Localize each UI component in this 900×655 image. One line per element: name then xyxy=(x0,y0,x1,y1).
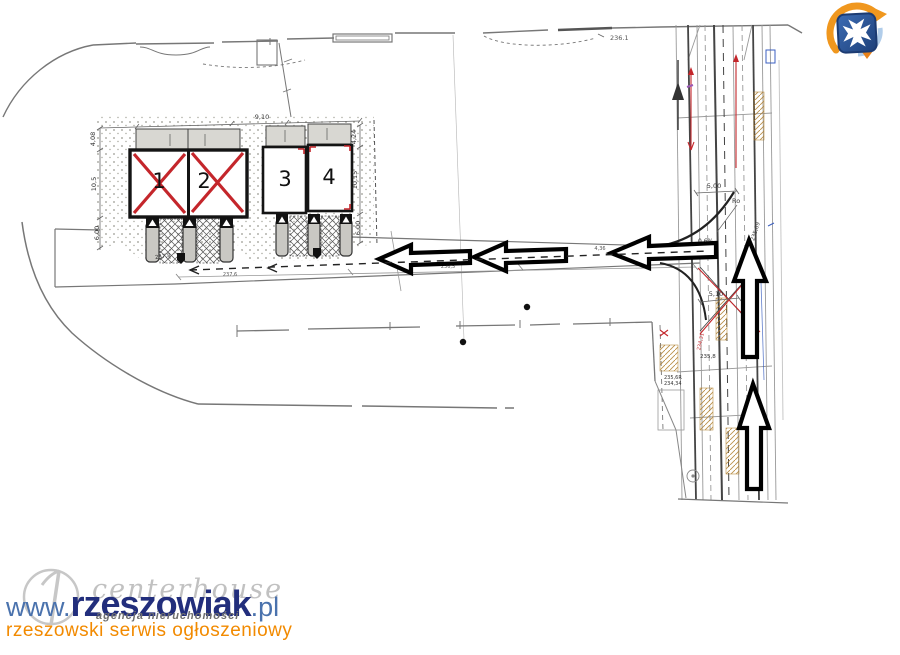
survey-dot xyxy=(524,304,530,310)
svg-text:6,00: 6,00 xyxy=(354,221,362,235)
rzeszow-crest-logo xyxy=(822,2,890,62)
url-suffix: .pl xyxy=(251,592,280,622)
survey-dot xyxy=(460,339,466,345)
svg-text:9,10: 9,10 xyxy=(255,113,269,121)
svg-text:10,15: 10,15 xyxy=(351,171,359,190)
svg-text:Ro: Ro xyxy=(732,197,740,205)
unit-number-2: 2 xyxy=(197,169,210,193)
svg-text:237,6: 237,6 xyxy=(223,272,237,278)
svg-text:234,34: 234,34 xyxy=(664,381,682,387)
svg-text:5,00: 5,00 xyxy=(707,182,721,190)
svg-text:4,08: 4,08 xyxy=(89,132,97,146)
crest-shield xyxy=(837,13,877,53)
svg-text:5,10: 5,10 xyxy=(709,290,723,298)
unit-number-1: 1 xyxy=(152,169,165,193)
roof-strip-b4 xyxy=(308,124,351,144)
url-prefix: www. xyxy=(6,592,71,622)
route-arrows xyxy=(379,237,769,489)
svg-text:234,31: 234,31 xyxy=(696,333,706,351)
site-plan-drawing: 1 2 3 4 xyxy=(0,0,900,655)
fence-line xyxy=(237,318,663,430)
svg-text:6,00: 6,00 xyxy=(93,226,101,240)
site-plan-page: 1 2 3 4 xyxy=(0,0,900,655)
route-arrow-left-1 xyxy=(379,245,470,273)
svg-text:235,69: 235,69 xyxy=(750,221,762,242)
svg-text:4,36: 4,36 xyxy=(594,246,605,252)
svg-text:4,24: 4,24 xyxy=(350,130,358,144)
roof-strip-b3 xyxy=(266,126,305,146)
portal-tagline: rzeszowski serwis ogłoszeniowy xyxy=(6,620,292,642)
svg-text:10,5: 10,5 xyxy=(90,177,98,191)
unit-number-3: 3 xyxy=(278,167,291,191)
svg-text:236.1: 236.1 xyxy=(610,34,629,42)
portal-watermark: centerhouse www.rzeszowiak.pl agencja ni… xyxy=(0,562,340,652)
route-arrow-up-2 xyxy=(739,384,769,489)
unit-number-4: 4 xyxy=(322,165,335,189)
svg-text:235,8: 235,8 xyxy=(700,354,716,360)
